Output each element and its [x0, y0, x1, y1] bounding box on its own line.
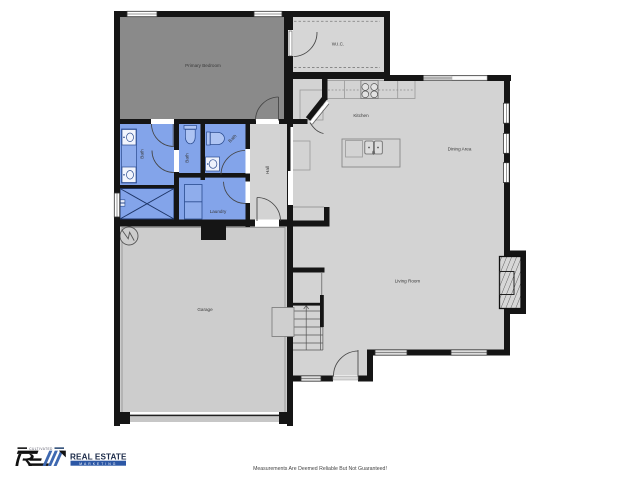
svg-text:CULTIVATED: CULTIVATED	[29, 447, 53, 451]
svg-text:Laundry: Laundry	[210, 209, 227, 214]
svg-text:Kitchen: Kitchen	[353, 113, 369, 118]
svg-text:REAL ESTATE: REAL ESTATE	[70, 452, 127, 461]
svg-text:Bath: Bath	[140, 149, 145, 159]
svg-text:Garage: Garage	[197, 307, 213, 312]
svg-text:Primary Bedroom: Primary Bedroom	[185, 63, 221, 68]
svg-text:Measurements Are Deemed Reliab: Measurements Are Deemed Reliable But Not…	[253, 466, 387, 472]
svg-text:Hall: Hall	[265, 166, 270, 174]
svg-text:W.I.C.: W.I.C.	[332, 42, 345, 47]
svg-text:Dining Area: Dining Area	[448, 147, 472, 152]
svg-text:Living Room: Living Room	[395, 279, 421, 284]
svg-text:Bath: Bath	[185, 153, 190, 163]
svg-text:MARKETING: MARKETING	[79, 462, 117, 466]
